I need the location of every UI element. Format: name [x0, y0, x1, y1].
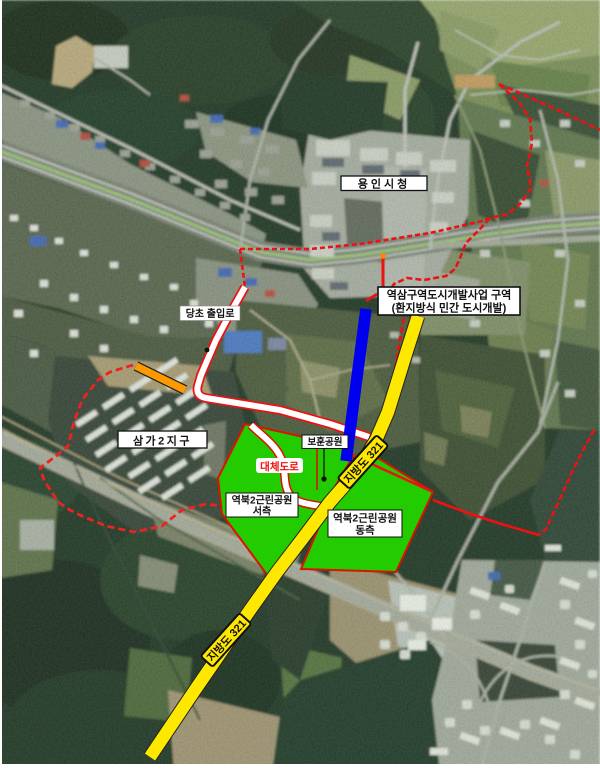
svg-text:보훈공원: 보훈공원	[308, 436, 343, 448]
svg-text:당초 출입로: 당초 출입로	[186, 307, 235, 320]
svg-text:대체도로: 대체도로	[260, 460, 299, 473]
svg-text:역북2근린공원: 역북2근린공원	[232, 494, 293, 507]
svg-text:삼가2지구: 삼가2지구	[133, 434, 192, 448]
svg-text:서측: 서측	[253, 505, 271, 518]
svg-text:(환지방식 민간 도시개발): (환지방식 민간 도시개발)	[392, 301, 507, 315]
svg-text:역북2근린공원: 역북2근린공원	[333, 512, 397, 525]
svg-text:동측: 동측	[355, 524, 375, 537]
svg-text:용인시청: 용인시청	[358, 177, 410, 191]
svg-text:역삼구역도시개발사업 구역: 역삼구역도시개발사업 구역	[387, 288, 512, 302]
